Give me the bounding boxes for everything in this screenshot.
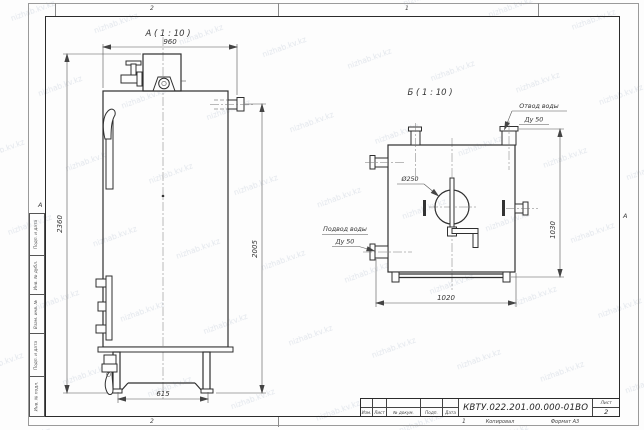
dim-615: 615 (118, 390, 208, 403)
door-crank (448, 178, 479, 248)
dim-1030: 1030 (511, 129, 564, 277)
lifting-eye (159, 78, 170, 89)
dim-2005-text: 2005 (251, 240, 259, 258)
view-b-title: Б ( 1 : 10 ) (407, 88, 452, 98)
drawing-sheet: nizhab.kv.kz nizhab.kv.kz 2 1 2 1 А А По… (0, 0, 644, 430)
dim-1020-text: 1020 (437, 294, 455, 302)
door-handle (103, 109, 115, 189)
box-fitting (121, 61, 143, 86)
dim-1030-text: 1030 (549, 221, 557, 239)
note-inlet: Подвод воды Ду 50 (322, 226, 375, 251)
diameter-text: Ø250 (401, 175, 419, 183)
view-a: А ( 1 : 10 ) (56, 29, 266, 403)
dim-2360: 2360 (56, 54, 141, 393)
door-hinges (96, 276, 112, 340)
hinge-bar-right (502, 200, 505, 216)
dim-1020: 1020 (376, 259, 516, 307)
inlet-note-line1: Подвод воды (323, 226, 367, 233)
stub-left-upper (365, 156, 405, 170)
outlet-note-line2: Ду 50 (524, 117, 544, 124)
outlet-note-line1: Отвод воды (519, 103, 558, 110)
base-pedestal (98, 347, 233, 393)
stub-top-left (409, 123, 422, 180)
dim-2360-text: 2360 (56, 215, 64, 233)
stub-inlet (363, 244, 412, 260)
drawing-views: А ( 1 : 10 ) (0, 0, 644, 430)
inlet-note-line2: Ду 50 (335, 239, 355, 246)
base-strip (392, 272, 510, 282)
note-diameter: Ø250 (397, 175, 439, 196)
view-b: Б ( 1 : 10 ) (322, 88, 567, 307)
dim-615-text: 615 (156, 390, 170, 398)
boiler-body-side (103, 91, 228, 347)
stub-right-middle (506, 202, 538, 215)
dim-960-text: 960 (163, 38, 177, 46)
hinge-bar-left (423, 200, 426, 216)
center-mark (162, 195, 165, 198)
note-outlet: Отвод воды Ду 50 (505, 103, 568, 130)
